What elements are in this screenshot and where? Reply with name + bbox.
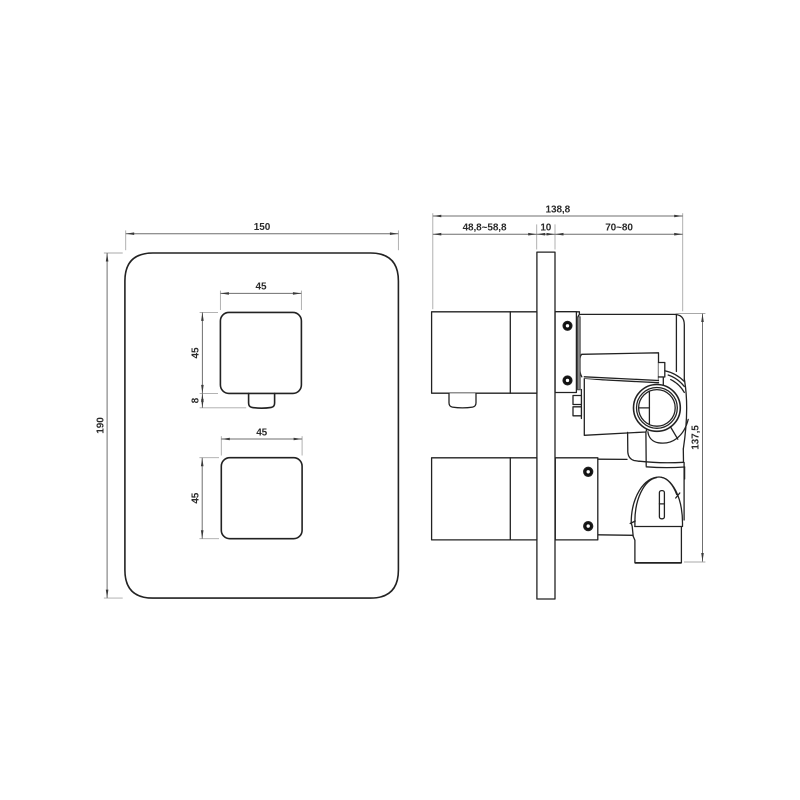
svg-text:45: 45 bbox=[191, 347, 202, 358]
svg-text:8: 8 bbox=[191, 397, 202, 403]
svg-text:137,5: 137,5 bbox=[691, 425, 702, 450]
svg-text:45: 45 bbox=[256, 282, 267, 293]
svg-text:45: 45 bbox=[190, 492, 201, 503]
svg-text:10: 10 bbox=[540, 223, 551, 234]
svg-text:190: 190 bbox=[95, 417, 106, 434]
svg-text:138,8: 138,8 bbox=[546, 204, 571, 215]
svg-text:48,8~58,8: 48,8~58,8 bbox=[463, 223, 507, 234]
svg-text:150: 150 bbox=[254, 222, 271, 233]
svg-text:70~80: 70~80 bbox=[605, 223, 633, 234]
svg-text:45: 45 bbox=[256, 427, 267, 438]
